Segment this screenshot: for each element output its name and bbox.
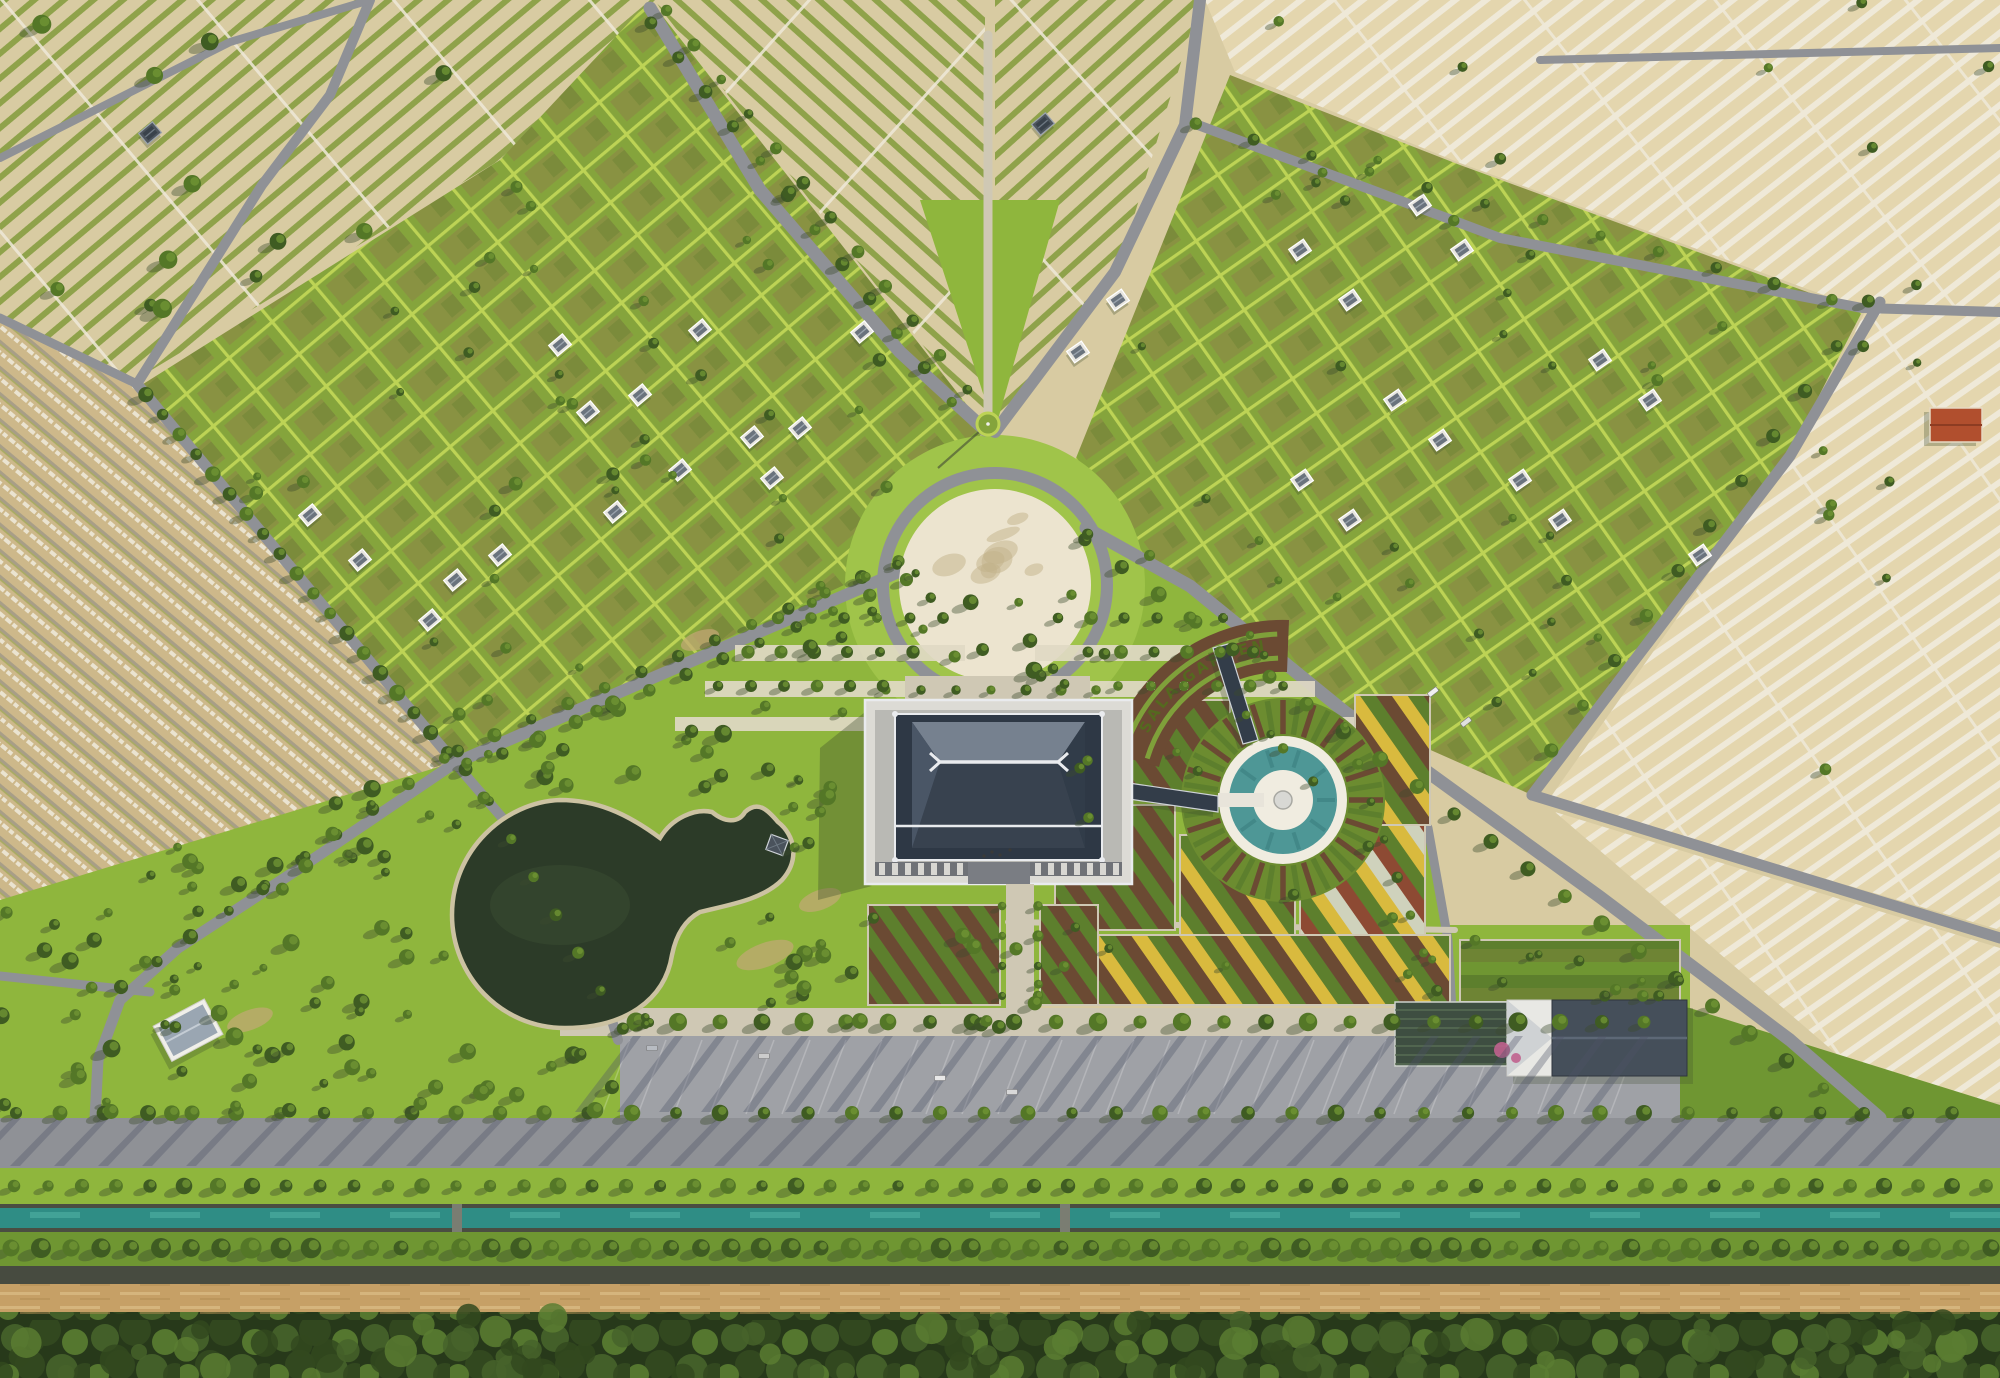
tree-highlight: [767, 764, 774, 771]
forest-canopy: [1127, 1311, 1151, 1335]
tree-highlight: [1389, 1240, 1400, 1251]
tree-highlight: [1074, 924, 1079, 929]
tree-highlight: [1550, 618, 1554, 622]
tree-highlight: [1708, 521, 1715, 528]
tree-highlight: [760, 1015, 768, 1023]
tree-highlight: [764, 702, 769, 707]
tree-highlight: [80, 1180, 87, 1187]
tree-highlight: [953, 652, 959, 658]
tree-highlight: [3, 1100, 10, 1107]
tree-highlight: [428, 811, 433, 816]
tree-highlight: [579, 1240, 589, 1250]
tree-highlight: [644, 1021, 648, 1025]
tree-highlight: [1740, 476, 1746, 482]
tree-highlight: [384, 869, 388, 873]
tree-highlight: [938, 1107, 945, 1114]
tree-highlight: [1659, 1241, 1668, 1250]
forest-canopy: [1923, 1354, 1941, 1372]
tree-highlight: [1037, 992, 1042, 997]
tree-highlight: [1114, 1108, 1121, 1115]
tree-highlight: [1839, 1242, 1847, 1250]
tree-highlight: [1370, 798, 1374, 802]
tree-highlight: [1775, 1108, 1782, 1115]
tree-highlight: [505, 644, 511, 650]
tree-highlight: [1321, 169, 1326, 174]
tree-highlight: [1012, 1016, 1020, 1024]
tree-highlight: [1194, 119, 1200, 125]
tree-highlight: [811, 599, 816, 604]
tree-highlight: [1819, 1108, 1825, 1114]
tree-highlight: [644, 1014, 648, 1018]
tree-highlight: [700, 371, 706, 377]
tree-highlight: [43, 944, 51, 952]
tree-highlight: [510, 835, 515, 840]
tree-highlight: [1168, 1180, 1176, 1188]
tree-highlight: [969, 596, 977, 604]
tree-highlight: [857, 247, 863, 253]
tree-highlight: [1779, 1241, 1788, 1250]
canal-weir: [1060, 1204, 1070, 1232]
tree-highlight: [690, 726, 697, 733]
forest-canopy: [1424, 1331, 1450, 1357]
tree-highlight: [1203, 1108, 1210, 1115]
forest-canopy: [1626, 1338, 1643, 1355]
tree-highlight: [433, 638, 437, 642]
temple-entrance: [968, 862, 1030, 884]
car: [647, 1046, 658, 1051]
tree-highlight: [493, 575, 498, 580]
tree-highlight: [228, 489, 235, 496]
tree-highlight: [732, 122, 738, 128]
tree-highlight: [334, 798, 341, 805]
tree-highlight: [1611, 1181, 1617, 1187]
tree-highlight: [1578, 957, 1583, 962]
tree-highlight: [1379, 1108, 1385, 1114]
tree-highlight: [879, 648, 884, 653]
forest-canopy: [1887, 1330, 1905, 1348]
tree-highlight: [487, 751, 491, 755]
tree-highlight: [983, 1108, 989, 1114]
tree-highlight: [1150, 682, 1155, 687]
tree-highlight: [1479, 1240, 1489, 1250]
tree-highlight: [69, 1241, 78, 1250]
tree-highlight: [1551, 362, 1555, 366]
tree-highlight: [1179, 1241, 1188, 1250]
tree-highlight: [109, 1106, 116, 1113]
tree-highlight: [442, 67, 450, 75]
tree-highlight: [717, 682, 722, 687]
tree-highlight: [1222, 614, 1227, 619]
tree-highlight: [1071, 1109, 1077, 1115]
tree-highlight: [15, 1108, 21, 1114]
tree-highlight: [1506, 290, 1510, 294]
tree-highlight: [1100, 1180, 1108, 1188]
tree-highlight: [345, 1036, 353, 1044]
tree-highlight: [1409, 579, 1414, 584]
tree-highlight: [1409, 911, 1414, 916]
tree-highlight: [630, 1107, 638, 1115]
tree-highlight: [1478, 630, 1483, 635]
tree-highlight: [319, 1181, 326, 1188]
tree-highlight: [273, 859, 281, 867]
tree-highlight: [1869, 1242, 1877, 1250]
tree-highlight: [578, 664, 582, 668]
tree-highlight: [1529, 251, 1534, 256]
tree-highlight: [878, 355, 885, 362]
tree-highlight: [1209, 1241, 1218, 1250]
column: [1035, 863, 1041, 875]
tree-highlight: [493, 730, 500, 737]
tree-highlight: [1565, 576, 1570, 581]
tree-highlight: [1803, 385, 1810, 392]
tree-highlight: [850, 1108, 857, 1115]
tree-highlight: [1156, 614, 1162, 620]
tree-highlight: [692, 1180, 699, 1187]
tree-highlight: [1989, 1241, 1998, 1250]
tree-highlight: [769, 914, 774, 919]
tree-highlight: [387, 1181, 393, 1187]
tree-highlight: [533, 266, 537, 270]
tree-highlight: [248, 1075, 256, 1083]
tree-highlight: [1888, 478, 1893, 483]
tree-highlight: [1139, 1017, 1146, 1024]
tree-highlight: [1882, 1180, 1890, 1188]
tree-highlight: [383, 852, 390, 859]
tree-highlight: [1239, 1242, 1246, 1249]
forest-canopy: [1688, 1330, 1720, 1362]
tree-highlight: [208, 35, 217, 44]
tree-highlight: [659, 1181, 665, 1187]
forest-canopy: [1270, 1340, 1294, 1364]
tree-highlight: [1271, 1181, 1277, 1187]
tree-highlight: [1598, 1107, 1606, 1115]
car: [759, 1054, 770, 1059]
tree-highlight: [614, 487, 618, 491]
tree-highlight: [419, 1098, 426, 1105]
tree-highlight: [1393, 544, 1398, 549]
tree-highlight: [632, 767, 640, 775]
tree-highlight: [353, 1181, 359, 1187]
tree-highlight: [329, 609, 335, 615]
tree-highlight: [1123, 614, 1129, 620]
tree-highlight: [1426, 183, 1432, 189]
tree-highlight: [530, 202, 535, 207]
tree-highlight: [1037, 932, 1043, 938]
tree-highlight: [1407, 1181, 1413, 1187]
tree-highlight: [458, 709, 465, 716]
tree-highlight: [718, 1016, 725, 1023]
tree-highlight: [1715, 263, 1721, 269]
tree-highlight: [1885, 575, 1889, 579]
tree-highlight: [1037, 963, 1041, 967]
tree-highlight: [1334, 1106, 1342, 1114]
tree-highlight: [849, 1240, 859, 1250]
tree-highlight: [326, 977, 333, 984]
tree-highlight: [794, 1179, 802, 1187]
tree-highlight: [255, 271, 261, 277]
tree-highlight: [466, 1045, 474, 1053]
tree-highlight: [331, 828, 338, 835]
tree-highlight: [1236, 1180, 1243, 1187]
tree-highlight: [219, 1240, 229, 1250]
tree-highlight: [611, 697, 619, 705]
tree-highlight: [816, 681, 822, 687]
forest-canopy: [760, 1344, 781, 1365]
tree-highlight: [1597, 634, 1601, 638]
tree-highlight: [1689, 1240, 1699, 1250]
tree-highlight: [523, 1181, 530, 1188]
tree-highlight: [1499, 154, 1505, 160]
tree-highlight: [1416, 781, 1423, 788]
tree-highlight: [1516, 1015, 1526, 1025]
tree-highlight: [997, 1021, 1004, 1028]
tree-highlight: [1867, 296, 1874, 303]
tree-highlight: [721, 654, 727, 660]
tree-highlight: [675, 1108, 681, 1114]
column: [905, 863, 911, 875]
tree-highlight: [399, 1242, 406, 1249]
forest-canopy: [1293, 1343, 1321, 1371]
tree-highlight: [565, 780, 572, 787]
tree-highlight: [256, 473, 260, 477]
tree-highlight: [1642, 991, 1648, 997]
tree-highlight: [896, 561, 901, 566]
tree-highlight: [669, 1242, 677, 1250]
tree-highlight: [1600, 917, 1608, 925]
forest-canopy: [555, 1342, 581, 1368]
tree-highlight: [1554, 1107, 1562, 1115]
tree-highlight: [652, 339, 657, 344]
tree-highlight: [546, 762, 553, 769]
tree-highlight: [719, 770, 726, 777]
tree-highlight: [1359, 1240, 1369, 1250]
tree-highlight: [405, 951, 413, 959]
tree-highlight: [1419, 1240, 1430, 1251]
tree-highlight: [1119, 1241, 1128, 1250]
tree-highlight: [782, 495, 786, 499]
tree-highlight: [1086, 756, 1091, 761]
tree-highlight: [261, 884, 268, 891]
tree-highlight: [922, 626, 927, 631]
tree-highlight: [166, 253, 175, 262]
tree-highlight: [370, 782, 379, 791]
tree-highlight: [1917, 1181, 1924, 1188]
tree-highlight: [245, 508, 252, 515]
tree-highlight: [1863, 1108, 1869, 1114]
tree-highlight: [173, 975, 178, 980]
tree-highlight: [1103, 649, 1109, 655]
tree-highlight: [144, 957, 150, 963]
tree-highlight: [990, 686, 995, 691]
column: [1113, 863, 1119, 875]
tree-highlight: [1830, 501, 1836, 507]
tree-highlight: [1396, 873, 1402, 879]
tree-highlight: [1278, 17, 1283, 22]
tree-highlight: [985, 1016, 991, 1022]
tree-highlight: [178, 429, 185, 436]
tree-highlight: [850, 967, 857, 974]
roof-south-slope: [912, 762, 1085, 848]
tree-highlight: [1054, 1016, 1061, 1023]
tree-highlight: [465, 759, 470, 764]
tree-highlight: [9, 1241, 17, 1249]
tree-highlight: [1599, 1242, 1607, 1250]
forest-canopy: [538, 1303, 567, 1332]
tree-highlight: [622, 1024, 628, 1030]
tree-highlight: [262, 529, 268, 535]
canal-glint: [1350, 1212, 1400, 1218]
tree-highlight: [532, 873, 537, 878]
forest-canopy: [1853, 1320, 1878, 1345]
tree-highlight: [809, 641, 817, 649]
column: [1048, 863, 1054, 875]
tree-highlight: [1087, 648, 1092, 653]
tree-highlight: [863, 1181, 869, 1187]
tree-highlight: [1059, 1242, 1066, 1249]
tree-highlight: [1484, 200, 1489, 205]
tree-highlight: [489, 1241, 499, 1251]
tree-highlight: [232, 1029, 241, 1038]
tree-highlight: [13, 1181, 19, 1187]
tree-highlight: [256, 1045, 261, 1050]
tree-highlight: [1549, 532, 1553, 536]
tree-highlight: [1312, 777, 1317, 782]
tree-highlight: [1032, 1180, 1039, 1187]
tree-highlight: [768, 411, 774, 417]
tree-highlight: [1282, 682, 1287, 687]
tree-highlight: [759, 157, 764, 162]
tree-highlight: [535, 734, 543, 742]
tree-highlight: [379, 667, 387, 675]
tree-highlight: [1383, 836, 1387, 840]
tree-highlight: [849, 681, 855, 687]
tree-highlight: [467, 348, 472, 353]
tree-highlight: [380, 922, 388, 930]
tree-highlight: [1467, 1108, 1473, 1114]
tree-highlight: [1063, 680, 1068, 685]
tree-highlight: [1391, 913, 1397, 919]
tree-highlight: [480, 1086, 488, 1094]
tree-highlight: [1767, 64, 1772, 69]
tree-highlight: [190, 177, 199, 186]
tree-highlight: [840, 633, 846, 639]
tree-highlight: [99, 1241, 109, 1251]
tree-highlight: [1509, 1181, 1515, 1187]
tree-highlight: [714, 636, 720, 642]
tree-highlight: [362, 648, 369, 655]
tree-highlight: [726, 1180, 734, 1188]
tree-highlight: [1249, 632, 1253, 636]
tree-highlight: [405, 928, 411, 934]
tree-highlight: [758, 639, 763, 644]
tree-highlight: [750, 620, 755, 625]
tree-highlight: [879, 1242, 887, 1250]
tree-highlight: [519, 1240, 530, 1251]
tree-highlight: [1780, 1180, 1788, 1188]
tree-highlight: [871, 608, 876, 613]
tree-highlight: [819, 808, 825, 814]
tree-highlight: [1197, 767, 1202, 772]
tree-highlight: [249, 1240, 260, 1251]
tree-highlight: [599, 987, 604, 992]
tree-highlight: [197, 907, 203, 913]
forest-canopy: [977, 1345, 997, 1365]
tree-highlight: [129, 1242, 137, 1250]
tree-highlight: [798, 777, 802, 781]
tree-highlight: [577, 948, 583, 954]
tree-highlight: [323, 1080, 327, 1084]
tree-highlight: [304, 860, 311, 867]
tree-highlight: [648, 685, 654, 691]
tree-highlight: [1489, 836, 1497, 844]
tree-highlight: [1452, 216, 1458, 222]
tree-highlight: [1028, 635, 1035, 642]
tree-highlight: [885, 482, 891, 488]
tree-highlight: [1915, 281, 1920, 286]
tree-highlight: [676, 1015, 685, 1024]
tree-highlight: [1089, 1242, 1097, 1250]
tree-highlight: [846, 647, 852, 653]
tree-highlight: [281, 884, 288, 891]
tree-highlight: [1822, 447, 1827, 452]
tree-highlight: [1001, 963, 1005, 967]
tree-highlight: [1275, 191, 1280, 196]
tree-highlight: [981, 645, 987, 651]
tree-highlight: [1677, 566, 1684, 573]
tree-highlight: [1814, 1180, 1822, 1188]
tree-highlight: [802, 982, 809, 989]
tree-highlight: [820, 940, 825, 945]
tree-highlight: [1029, 1241, 1038, 1250]
tree-highlight: [514, 478, 521, 485]
forest-canopy: [915, 1312, 947, 1344]
tree-highlight: [1772, 430, 1779, 437]
tree-highlight: [197, 963, 201, 967]
tree-highlight: [802, 177, 809, 184]
tree-highlight: [1563, 891, 1570, 898]
tree-highlight: [1951, 1108, 1958, 1115]
tree: [1436, 807, 1460, 825]
tree-highlight: [558, 371, 562, 375]
tree-highlight: [1037, 902, 1042, 907]
tree-highlight: [1642, 1107, 1650, 1115]
forest-canopy: [336, 1339, 359, 1362]
tree-highlight: [750, 681, 756, 687]
tree-highlight: [603, 683, 609, 689]
tree-highlight: [911, 316, 917, 322]
forest-canopy: [1378, 1321, 1410, 1353]
tree-highlight: [1747, 1181, 1753, 1187]
tree-highlight: [886, 1016, 894, 1024]
tree-highlight: [930, 1181, 937, 1188]
tree-highlight: [1057, 614, 1062, 619]
tree-highlight: [1148, 551, 1154, 557]
tree-highlight: [1108, 945, 1113, 950]
tree-highlight: [1550, 745, 1557, 752]
tree-highlight: [843, 613, 849, 619]
tree-highlight: [228, 907, 233, 912]
tree-highlight: [339, 1241, 348, 1250]
tree-highlight: [705, 747, 712, 754]
tree-highlight: [1066, 1180, 1073, 1187]
greenhouse: [1395, 1002, 1507, 1066]
tree-highlight: [802, 1015, 811, 1024]
tree-highlight: [367, 1108, 373, 1114]
tree-highlight: [1086, 530, 1092, 536]
tree-highlight: [1431, 956, 1435, 960]
tree-highlight: [1205, 495, 1210, 500]
tree-highlight: [515, 182, 521, 188]
